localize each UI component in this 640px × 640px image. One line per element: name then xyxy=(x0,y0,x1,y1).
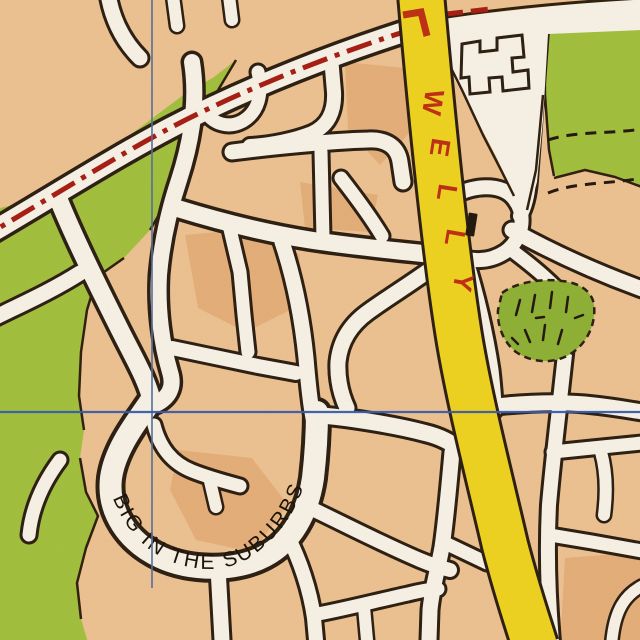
map-canvas: W E L L Y BIG IN THE SUBURBS xyxy=(0,0,640,640)
street-map: W E L L Y BIG IN THE SUBURBS xyxy=(0,0,640,640)
paper-grain-overlay xyxy=(0,0,640,640)
